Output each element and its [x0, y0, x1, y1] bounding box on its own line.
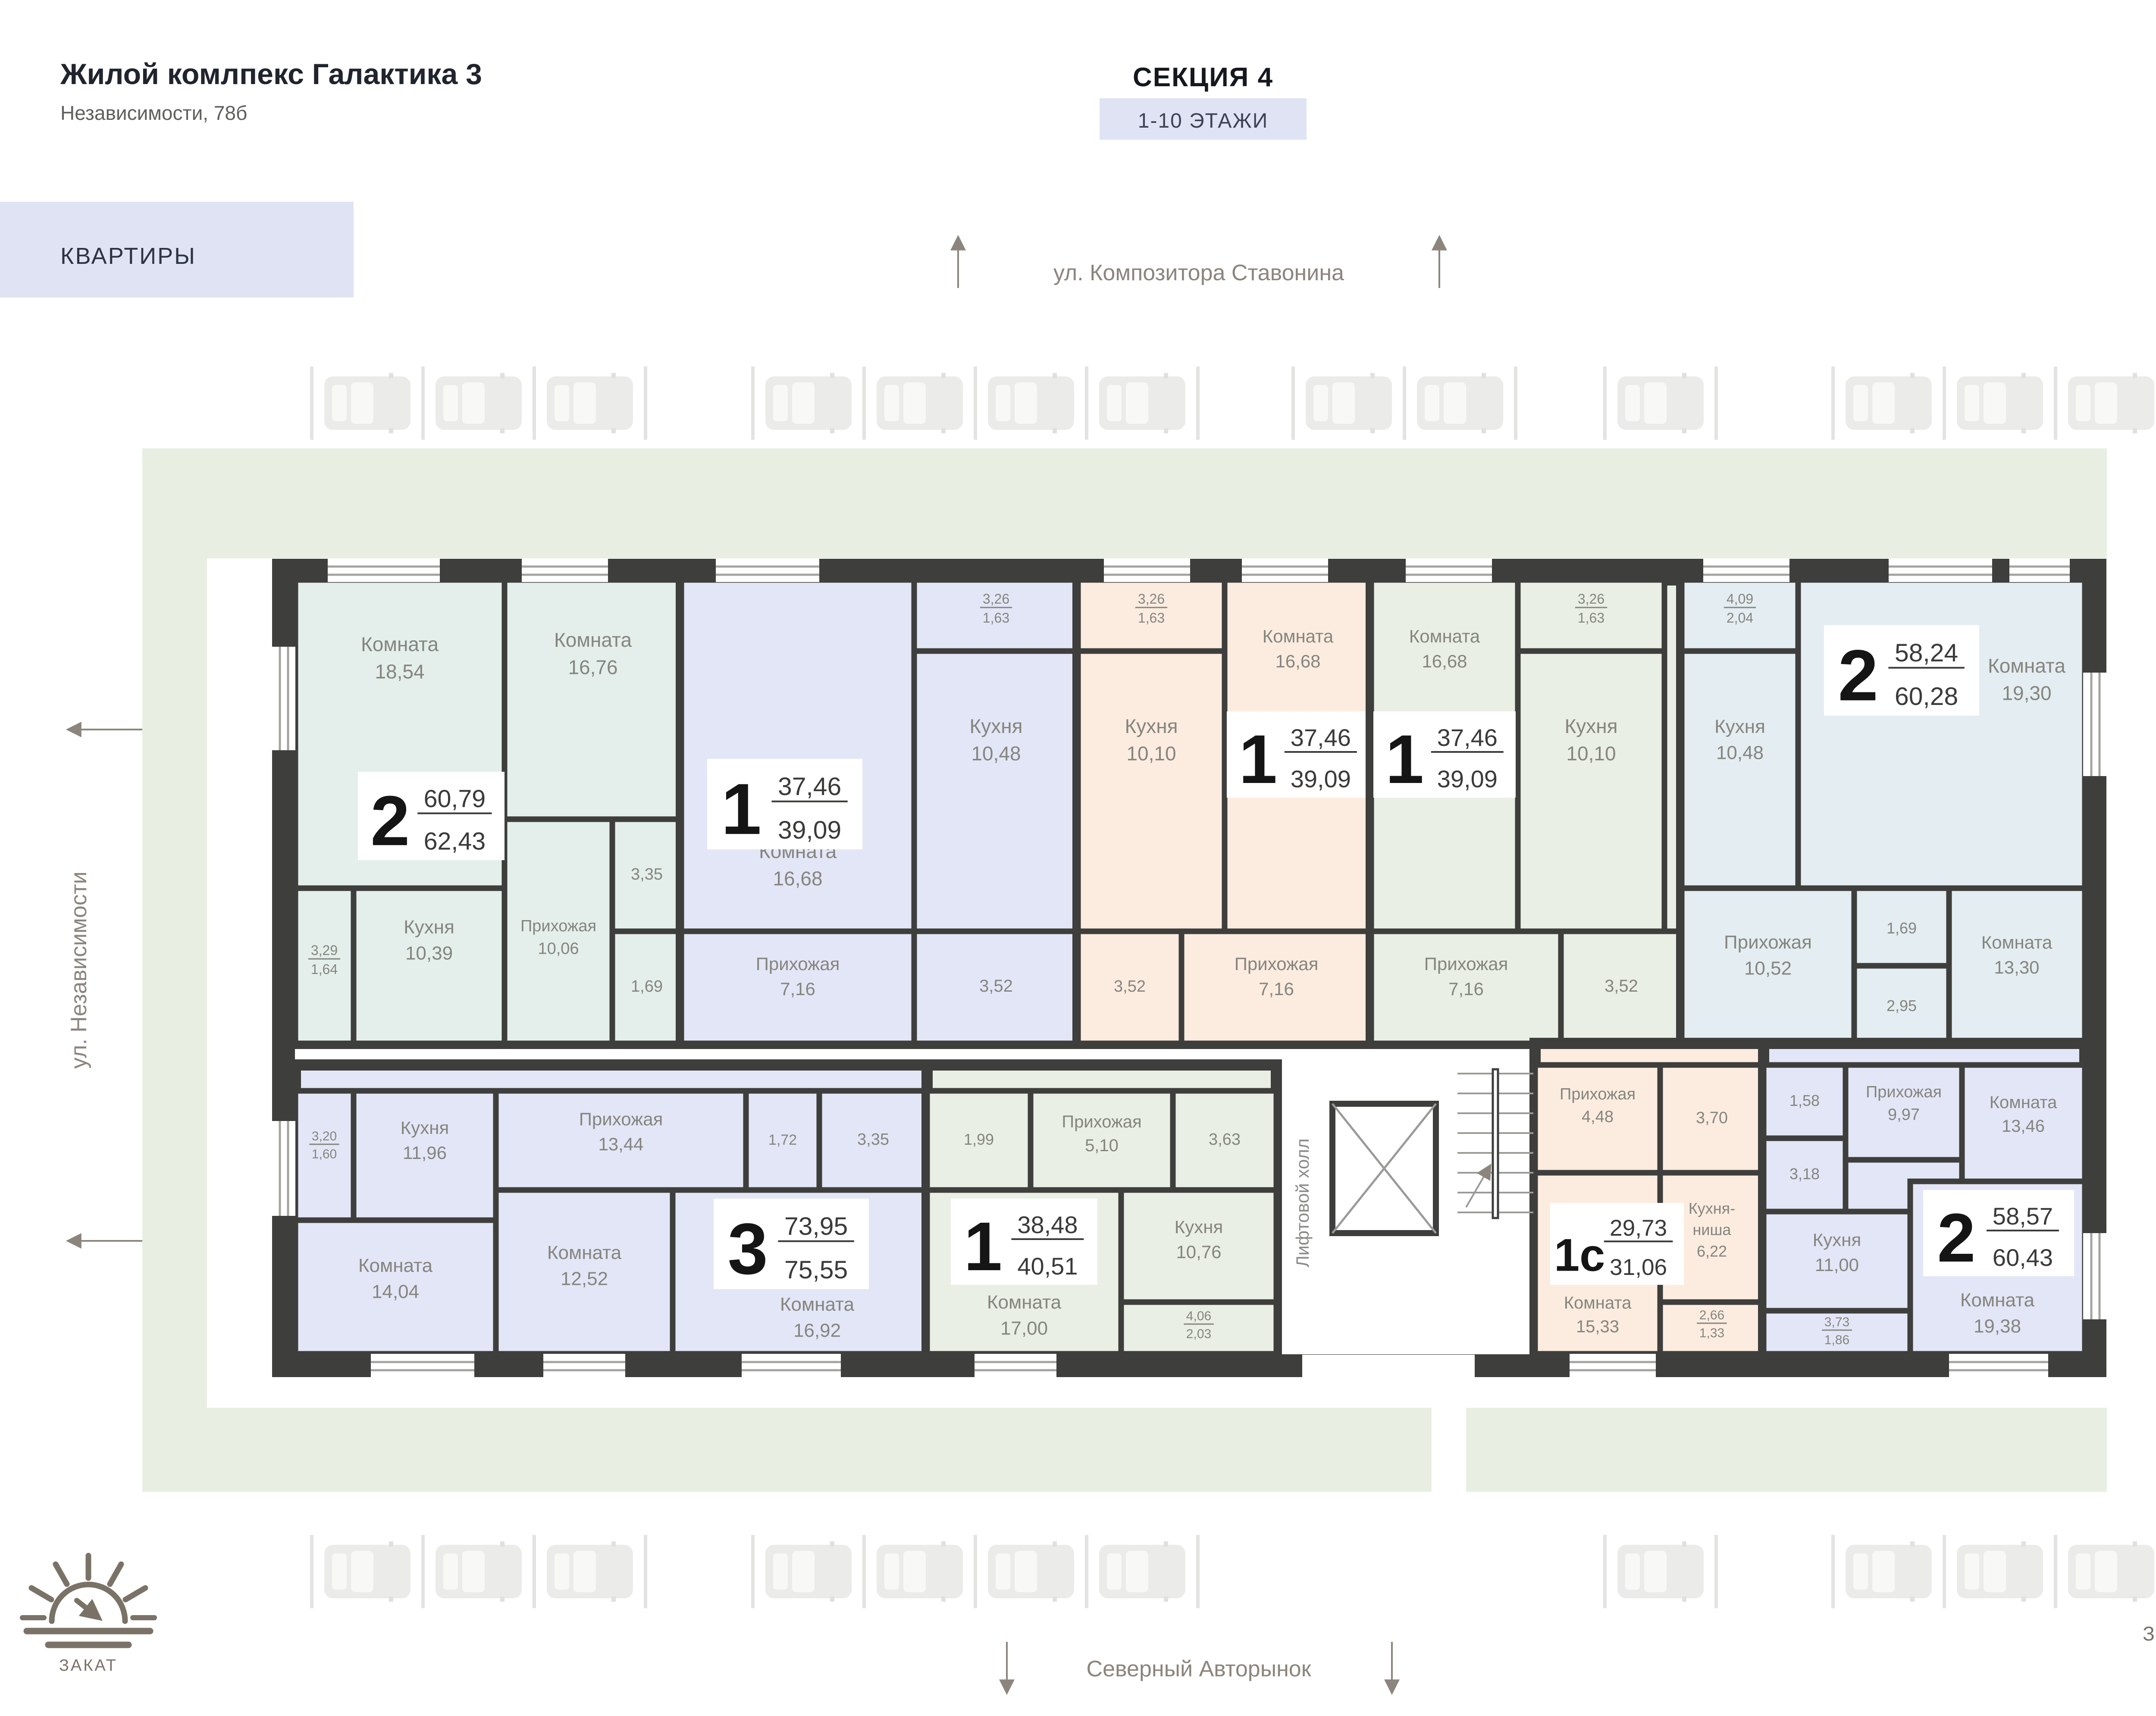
street-left-label: ул. Независимости — [66, 871, 91, 1068]
room-label: 1,63 — [1138, 610, 1165, 626]
room-label: 13,46 — [2002, 1117, 2045, 1136]
window — [1242, 558, 1328, 582]
room-label: 16,68 — [1275, 651, 1320, 671]
car-glass-front — [1984, 1551, 2006, 1592]
room-label: 10,52 — [1744, 958, 1792, 979]
room-label: Прихожая — [1235, 954, 1319, 974]
window-gap — [1889, 558, 1992, 582]
car-glass-rear — [2076, 385, 2090, 421]
car-icon — [765, 1541, 852, 1602]
room[interactable] — [1518, 651, 1664, 931]
apartment-1-room-37-46-c: Комната16,683,261,63Кухня10,10Прихожая7,… — [1371, 580, 1682, 1043]
room-label: Кухня — [401, 1118, 449, 1138]
sunset-label: ЗАКАТ — [59, 1657, 118, 1675]
apartment-1-room-37-46-a: Комната16,683,261,63Кухня10,48Прихожая7,… — [681, 580, 1078, 1043]
lawn-strip-bottom-right — [1466, 1408, 2107, 1492]
room-label: Кухня — [1813, 1230, 1861, 1250]
window-gap — [328, 558, 440, 582]
room-label: 10,39 — [405, 943, 453, 964]
car-glass-front — [351, 382, 373, 424]
window-gap — [272, 1121, 295, 1216]
badge-rooms-count: 1 — [721, 768, 761, 849]
car-glass-front — [1126, 1551, 1148, 1592]
window-gap — [1949, 1354, 2048, 1378]
car-glass-rear — [773, 1553, 788, 1590]
car-icon — [1617, 373, 1704, 433]
car-glass-rear — [996, 1553, 1010, 1590]
room-label: 3,52 — [979, 977, 1013, 996]
elevator-shaft — [1332, 1104, 1436, 1233]
room-label: Комната — [1409, 626, 1480, 646]
window-gap — [975, 1354, 1056, 1378]
room-label: 1,72 — [768, 1132, 797, 1148]
room-label: Комната — [547, 1242, 622, 1263]
room-label: 10,10 — [1566, 742, 1616, 764]
room-label: Комната — [1981, 932, 2053, 952]
room-label: 3,52 — [1114, 977, 1146, 996]
car-glass-front — [903, 1551, 926, 1592]
window-gap — [1104, 558, 1190, 582]
floors-selector[interactable]: 1-10 ЭТАЖИ — [1100, 98, 1307, 140]
page-title: Жилой комлпекс Галактика 3 — [60, 58, 482, 91]
apartment-2-rooms-58-57: 1,583,18Прихожая9,97Комната13,46Кухня11,… — [1764, 1043, 2085, 1354]
room-label: Прихожая — [1560, 1085, 1636, 1103]
room-label: 2,95 — [1887, 997, 1917, 1015]
room-label: Комната — [780, 1294, 855, 1315]
badge-area-total: 60,28 — [1895, 683, 1958, 711]
car-glass-front — [2095, 1551, 2117, 1592]
car-glass-rear — [996, 385, 1010, 421]
room-label: 1,63 — [983, 610, 1009, 626]
badge-area-living: 60,79 — [424, 785, 486, 813]
room-label: Кухня — [1564, 715, 1617, 737]
car-glass-rear — [884, 1553, 899, 1590]
badge-area-living: 37,46 — [1291, 724, 1351, 751]
room-label: Прихожая — [1062, 1112, 1141, 1131]
room-label: 1,60 — [312, 1147, 337, 1161]
room-label: Кухня — [969, 715, 1022, 737]
window — [716, 558, 819, 582]
room-label: 10,76 — [1176, 1242, 1221, 1262]
window — [2083, 673, 2107, 776]
window-gap — [522, 558, 608, 582]
badge-rooms-count: 2 — [370, 781, 410, 860]
room-label: Кухня — [1175, 1217, 1223, 1237]
sunset-icon — [22, 1556, 154, 1645]
room-label: 13,30 — [1994, 957, 2039, 977]
window — [328, 558, 440, 582]
room-label: Кухня — [404, 917, 454, 938]
car-glass-rear — [332, 1553, 347, 1590]
car-icon — [877, 1541, 963, 1602]
window — [1889, 558, 1992, 582]
badge-area-living: 58,24 — [1895, 639, 1958, 667]
room-label: 11,96 — [403, 1143, 447, 1163]
apartment-badge[interactable]: 137,4639,09 — [1227, 711, 1369, 798]
room-label: 17,00 — [1000, 1318, 1048, 1339]
car-icon — [1099, 1541, 1185, 1602]
badge-rooms-count: 1 — [1239, 720, 1277, 798]
room-label: 3,20 — [312, 1129, 337, 1143]
badge-area-living: 38,48 — [1017, 1211, 1078, 1238]
room-label: 11,00 — [1815, 1255, 1859, 1275]
room-label: 16,68 — [773, 867, 822, 889]
apartment-1s-29-73: Прихожая4,483,70Комната15,33Кухня-ниша6,… — [1535, 1043, 1764, 1354]
window — [272, 1121, 295, 1216]
apartment-badge[interactable]: 260,7962,43 — [358, 772, 505, 860]
window — [1703, 558, 1789, 582]
car-glass-rear — [1965, 385, 1979, 421]
badge-area-total: 39,09 — [1291, 765, 1351, 792]
room[interactable] — [354, 888, 505, 1043]
window-gap — [2083, 673, 2107, 776]
car-glass-front — [903, 382, 926, 424]
car-glass-rear — [1425, 385, 1439, 421]
apartment-badge[interactable]: 258,2460,28 — [1824, 625, 1979, 716]
room-label: 3,26 — [1578, 591, 1604, 607]
badge-area-living: 37,46 — [778, 773, 841, 801]
room-label: 15,33 — [1576, 1317, 1619, 1336]
room-label: Кухня- — [1689, 1199, 1735, 1217]
room-label: 16,76 — [568, 656, 617, 678]
apartment-3-rooms-73-95: 3,201,60Кухня11,96Комната14,04Прихожая13… — [295, 1065, 927, 1354]
room-label: 10,48 — [971, 742, 1021, 764]
room-label: Комната — [1564, 1293, 1632, 1312]
room-label: 18,54 — [375, 660, 424, 683]
room-label: 14,04 — [372, 1281, 419, 1303]
badge-rooms-count: 1 — [1385, 720, 1424, 798]
apartment-1-room-37-46-b: 3,261,63Кухня10,10Комната16,683,52Прихож… — [1078, 580, 1371, 1043]
window-gap — [1406, 558, 1492, 582]
window — [1949, 1354, 2048, 1378]
badge-area-living: 29,73 — [1610, 1215, 1667, 1241]
badge-area-total: 31,06 — [1610, 1255, 1667, 1280]
apartments-button[interactable]: КВАРТИРЫ — [0, 202, 354, 297]
car-glass-rear — [884, 385, 899, 421]
room-label: Комната — [1263, 626, 1334, 646]
apartment-badge[interactable]: 137,4639,09 — [1373, 711, 1516, 798]
room-label: 1,86 — [1824, 1333, 1849, 1347]
room-label: 4,09 — [1727, 591, 1753, 607]
badge-rooms-count: 2 — [1838, 635, 1878, 716]
car-glass-rear — [1107, 385, 1122, 421]
car-icon — [1099, 373, 1185, 433]
window — [1570, 1354, 1656, 1378]
window-gap — [2083, 1233, 2107, 1319]
room-label: 2,03 — [1186, 1327, 1211, 1341]
car-glass-front — [792, 382, 815, 424]
street-top-label: ул. Композитора Ставонина — [1053, 260, 1344, 285]
badge-rooms-count: 1 — [964, 1208, 1002, 1285]
room-label: 3,63 — [1209, 1130, 1241, 1149]
room-label: Комната — [1960, 1290, 2035, 1311]
car-glass-front — [1126, 382, 1148, 424]
badge-area-total: 39,09 — [1437, 765, 1498, 792]
car-glass-front — [1644, 382, 1667, 424]
window-gap — [272, 647, 295, 750]
car-glass-rear — [443, 1553, 458, 1590]
badge-area-total: 60,43 — [1993, 1244, 2053, 1271]
window-gap — [1570, 1354, 1656, 1378]
room-label: Прихожая — [1424, 954, 1508, 974]
window — [1104, 558, 1190, 582]
car-glass-front — [1984, 382, 2006, 424]
car-glass-rear — [1625, 385, 1640, 421]
car-glass-front — [1015, 1551, 1037, 1592]
room-label: 2,04 — [1727, 610, 1753, 626]
window — [975, 1354, 1056, 1378]
room-label: Комната — [554, 629, 632, 651]
room[interactable] — [505, 580, 681, 819]
badge-area-total: 62,43 — [424, 827, 486, 855]
car-glass-front — [792, 1551, 815, 1592]
room-label: Кухня — [1125, 715, 1178, 737]
car-glass-rear — [1853, 385, 1868, 421]
car-icon — [1957, 1541, 2043, 1602]
room-label: 19,30 — [2002, 682, 2051, 704]
room-label: 4,48 — [1582, 1108, 1614, 1126]
room-label: 19,38 — [1974, 1316, 2021, 1337]
window-gap — [2009, 558, 2070, 582]
badge-area-living: 37,46 — [1437, 724, 1498, 751]
elevator-hall-label: Лифтовой холл — [1292, 1138, 1313, 1267]
car-icon — [765, 373, 852, 433]
window-gap — [716, 558, 819, 582]
car-glass-rear — [1107, 1553, 1122, 1590]
room-label: 3,35 — [631, 865, 663, 883]
car-glass-front — [1332, 382, 1355, 424]
room-label: Прихожая — [1724, 932, 1812, 953]
car-glass-rear — [773, 385, 788, 421]
car-icon — [547, 373, 633, 433]
room-label: 3,73 — [1824, 1315, 1849, 1329]
room-label: 9,97 — [1888, 1105, 1920, 1124]
room-label: 7,16 — [780, 979, 815, 999]
car-glass-front — [2095, 382, 2117, 424]
lawn-strip-bottom-left — [142, 1408, 1432, 1492]
floor-plan-page: Жилой комлпекс Галактика 3 Независимости… — [0, 0, 2156, 1716]
car-glass-front — [1872, 382, 1895, 424]
compass-west-label: З — [2143, 1622, 2155, 1645]
car-glass-front — [1644, 1551, 1667, 1592]
window-gap — [742, 1354, 841, 1378]
room-label: 1,63 — [1578, 610, 1604, 626]
car-icon — [1846, 373, 1932, 433]
window — [543, 1354, 625, 1378]
room-label: 13,44 — [598, 1134, 643, 1154]
page-subtitle: Независимости, 78б — [60, 102, 247, 124]
car-glass-front — [462, 382, 485, 424]
apartment-badge[interactable]: 258,5760,43 — [1923, 1190, 2074, 1276]
window-gap — [371, 1354, 474, 1378]
apartment-badge[interactable]: 138,4840,51 — [951, 1199, 1097, 1285]
car-icon — [1957, 373, 2043, 433]
room-label: Комната — [987, 1292, 1062, 1313]
badge-area-total: 40,51 — [1017, 1253, 1078, 1280]
building-entrance — [1302, 1355, 1475, 1378]
window-gap — [1703, 558, 1789, 582]
car-glass-rear — [1853, 1553, 1868, 1590]
apartment-1-room-38-48: 1,99Прихожая5,103,63Комната17,00Кухня10,… — [927, 1065, 1276, 1354]
car-glass-front — [573, 382, 596, 424]
room-label: 1,99 — [964, 1130, 994, 1148]
car-icon — [436, 1541, 522, 1602]
car-icon — [324, 1541, 411, 1602]
car-icon — [436, 373, 522, 433]
car-glass-front — [1015, 382, 1037, 424]
room-label: Комната — [361, 633, 439, 655]
window — [272, 647, 295, 750]
car-icon — [547, 1541, 633, 1602]
room-label: ниша — [1693, 1221, 1732, 1239]
room-label: 6,22 — [1697, 1242, 1727, 1260]
car-icon — [2068, 373, 2154, 433]
room-label: 1,69 — [631, 977, 663, 996]
window — [2009, 558, 2070, 582]
car-icon — [988, 373, 1074, 433]
parking-row-bottom — [312, 1535, 2156, 1608]
room-label: 3,18 — [1789, 1165, 1820, 1183]
car-glass-front — [462, 1551, 485, 1592]
window — [371, 1354, 474, 1378]
apartments-button-label: КВАРТИРЫ — [60, 243, 196, 269]
window — [522, 558, 608, 582]
car-glass-front — [351, 1551, 373, 1592]
badge-area-total: 39,09 — [778, 816, 841, 844]
room-label: Прихожая — [579, 1109, 663, 1129]
room-label: Прихожая — [520, 917, 596, 935]
apartment-2-rooms-58-24: 4,092,04Кухня10,48Комната19,30Прихожая10… — [1682, 580, 2085, 1043]
car-glass-rear — [443, 385, 458, 421]
room-label: 3,29 — [311, 943, 338, 958]
room-label: Комната — [358, 1255, 433, 1276]
car-icon — [1306, 373, 1392, 433]
lawn-strip-top — [142, 448, 2107, 558]
car-glass-rear — [1965, 1553, 1979, 1590]
room-label: 7,16 — [1259, 979, 1294, 999]
room-label: 3,26 — [1138, 591, 1165, 607]
room-label: 3,26 — [983, 591, 1009, 607]
room-label: 12,52 — [561, 1268, 608, 1290]
room-label: 3,70 — [1696, 1109, 1728, 1127]
car-glass-front — [573, 1551, 596, 1592]
parking-row-top — [312, 366, 2156, 440]
badge-area-total: 75,55 — [784, 1256, 848, 1284]
window-gap — [1242, 558, 1328, 582]
section-title: СЕКЦИЯ 4 — [1133, 63, 1273, 92]
room-label: 4,06 — [1186, 1309, 1211, 1323]
badge-area-living: 73,95 — [784, 1212, 848, 1240]
room-label: 16,92 — [793, 1320, 841, 1341]
car-glass-rear — [555, 1553, 569, 1590]
room[interactable] — [914, 651, 1078, 931]
room-label: 1,58 — [1789, 1092, 1820, 1109]
badge-area-living: 58,57 — [1993, 1202, 2053, 1230]
room-label: 10,10 — [1126, 742, 1176, 764]
floors-selector-label: 1-10 ЭТАЖИ — [1138, 110, 1268, 132]
apartment-badge[interactable]: 1с29,7331,06 — [1550, 1203, 1684, 1285]
badge-rooms-count: 3 — [727, 1208, 768, 1289]
room-label: 1,69 — [1887, 919, 1917, 937]
room-label: 2,66 — [1699, 1308, 1724, 1322]
car-icon — [1617, 1541, 1704, 1602]
window — [1406, 558, 1492, 582]
room-label: 10,06 — [538, 939, 579, 958]
room-label: 1,33 — [1699, 1326, 1724, 1340]
room-label: Комната — [1990, 1093, 2057, 1112]
car-icon — [1846, 1541, 1932, 1602]
room-label: 3,35 — [857, 1130, 889, 1149]
badge-rooms-count: 1с — [1554, 1230, 1605, 1281]
room-label: Кухня — [1714, 716, 1765, 737]
apartment-2-rooms-60-79: Комната18,54Комната16,76Кухня10,393,291,… — [295, 580, 681, 1043]
badge-rooms-count: 2 — [1937, 1199, 1976, 1276]
car-icon — [1417, 373, 1503, 433]
room-label: 7,16 — [1448, 979, 1484, 999]
room[interactable] — [1078, 651, 1225, 931]
car-icon — [877, 373, 963, 433]
window-gap — [543, 1354, 625, 1378]
lawn-strip-left — [142, 448, 207, 1492]
apartment-badge[interactable]: 373,9575,55 — [714, 1199, 869, 1289]
room-label: Прихожая — [756, 954, 840, 974]
car-icon — [988, 1541, 1074, 1602]
room-label: 3,52 — [1604, 977, 1638, 996]
street-bottom-label: Северный Авторынок — [1087, 1657, 1311, 1682]
window — [742, 1354, 841, 1378]
car-glass-rear — [1625, 1553, 1640, 1590]
room-label: Прихожая — [1866, 1083, 1942, 1101]
car-icon — [324, 373, 411, 433]
car-glass-front — [1444, 382, 1466, 424]
car-icon — [2068, 1541, 2154, 1602]
car-glass-rear — [1313, 385, 1328, 421]
room-label: Комната — [1988, 654, 2066, 677]
room-label: 1,64 — [311, 961, 338, 977]
room-label: 5,10 — [1085, 1136, 1119, 1155]
apartment-badge[interactable]: 137,4639,09 — [707, 759, 862, 849]
room-label: 16,68 — [1422, 651, 1467, 671]
car-glass-rear — [555, 385, 569, 421]
car-glass-front — [1872, 1551, 1895, 1592]
car-glass-rear — [332, 385, 347, 421]
room-label: 10,48 — [1716, 742, 1764, 764]
car-glass-rear — [2076, 1553, 2090, 1590]
window — [2083, 1233, 2107, 1319]
